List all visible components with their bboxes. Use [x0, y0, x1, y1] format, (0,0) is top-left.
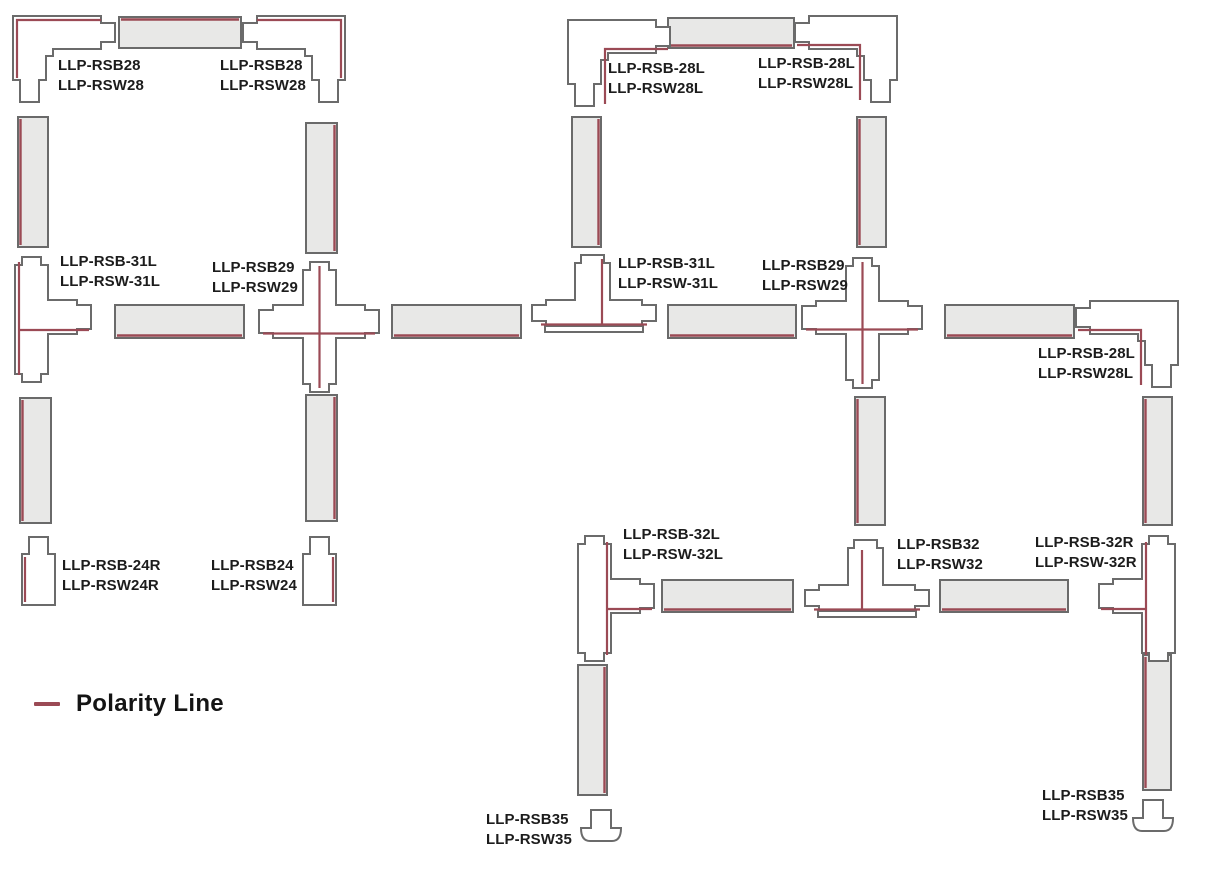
track-segment	[668, 305, 796, 338]
track-segment	[392, 305, 521, 338]
track-segment	[945, 305, 1074, 338]
track-segment	[662, 580, 793, 612]
connector-polarity-diagram: LLP-RSB28LLP-RSW28 LLP-RSB28LLP-RSW28 LL…	[0, 0, 1214, 870]
legend: Polarity Line	[34, 690, 224, 718]
part-label: LLP-RSB-32LLLP-RSW-32L	[623, 525, 723, 565]
end-cap	[303, 537, 336, 605]
part-label: LLP-RSB-31LLLP-RSW-31L	[60, 252, 160, 292]
part-label: LLP-RSB-32RLLP-RSW-32R	[1035, 533, 1137, 573]
track-segment	[572, 117, 601, 247]
part-label: LLP-RSB-31LLLP-RSW-31L	[618, 254, 718, 294]
track-segment	[306, 395, 337, 521]
part-label: LLP-RSB28LLP-RSW28	[220, 56, 306, 96]
track-segment	[18, 117, 48, 247]
track-segment	[115, 305, 244, 338]
track-segment	[20, 398, 51, 523]
track-segment	[857, 117, 886, 247]
end-cap	[581, 810, 621, 841]
diagram-canvas	[0, 0, 1214, 870]
part-label: LLP-RSB29LLP-RSW29	[212, 258, 298, 298]
part-label: LLP-RSB24LLP-RSW24	[211, 556, 297, 596]
polarity-line-swatch	[34, 702, 60, 706]
part-label: LLP-RSB-28LLLP-RSW28L	[1038, 344, 1135, 384]
track-segment	[668, 18, 794, 48]
end-cap	[1133, 800, 1173, 831]
track-segment	[306, 123, 337, 253]
part-label: LLP-RSB29LLP-RSW29	[762, 256, 848, 296]
part-label: LLP-RSB-24RLLP-RSW24R	[62, 556, 161, 596]
track-segment	[119, 17, 241, 48]
part-label: LLP-RSB28LLP-RSW28	[58, 56, 144, 96]
end-cap	[22, 537, 55, 605]
part-label: LLP-RSB-28LLLP-RSW28L	[608, 59, 705, 99]
track-segment	[578, 665, 607, 795]
part-label: LLP-RSB35LLP-RSW35	[1042, 786, 1128, 826]
part-label: LLP-RSB35LLP-RSW35	[486, 810, 572, 850]
track-segment	[940, 580, 1068, 612]
part-label: LLP-RSB-28LLLP-RSW28L	[758, 54, 855, 94]
track-segments	[18, 17, 1172, 795]
track-segment	[1143, 655, 1171, 790]
track-segment	[855, 397, 885, 525]
part-label: LLP-RSB32LLP-RSW32	[897, 535, 983, 575]
track-segment	[1143, 397, 1172, 525]
legend-label: Polarity Line	[76, 690, 224, 718]
